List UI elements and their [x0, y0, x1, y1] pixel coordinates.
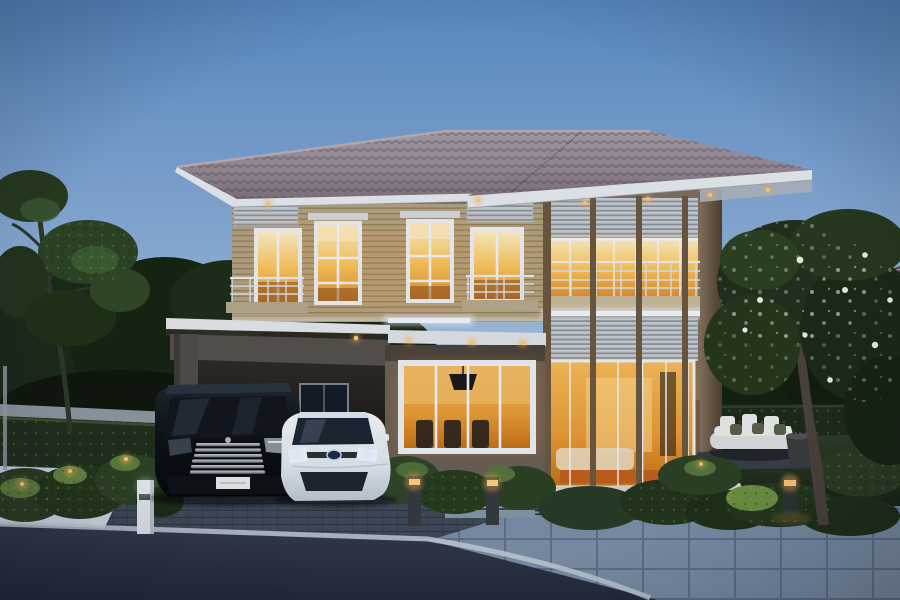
house-photo — [0, 0, 900, 600]
vignette — [0, 0, 900, 600]
scene — [0, 0, 900, 600]
